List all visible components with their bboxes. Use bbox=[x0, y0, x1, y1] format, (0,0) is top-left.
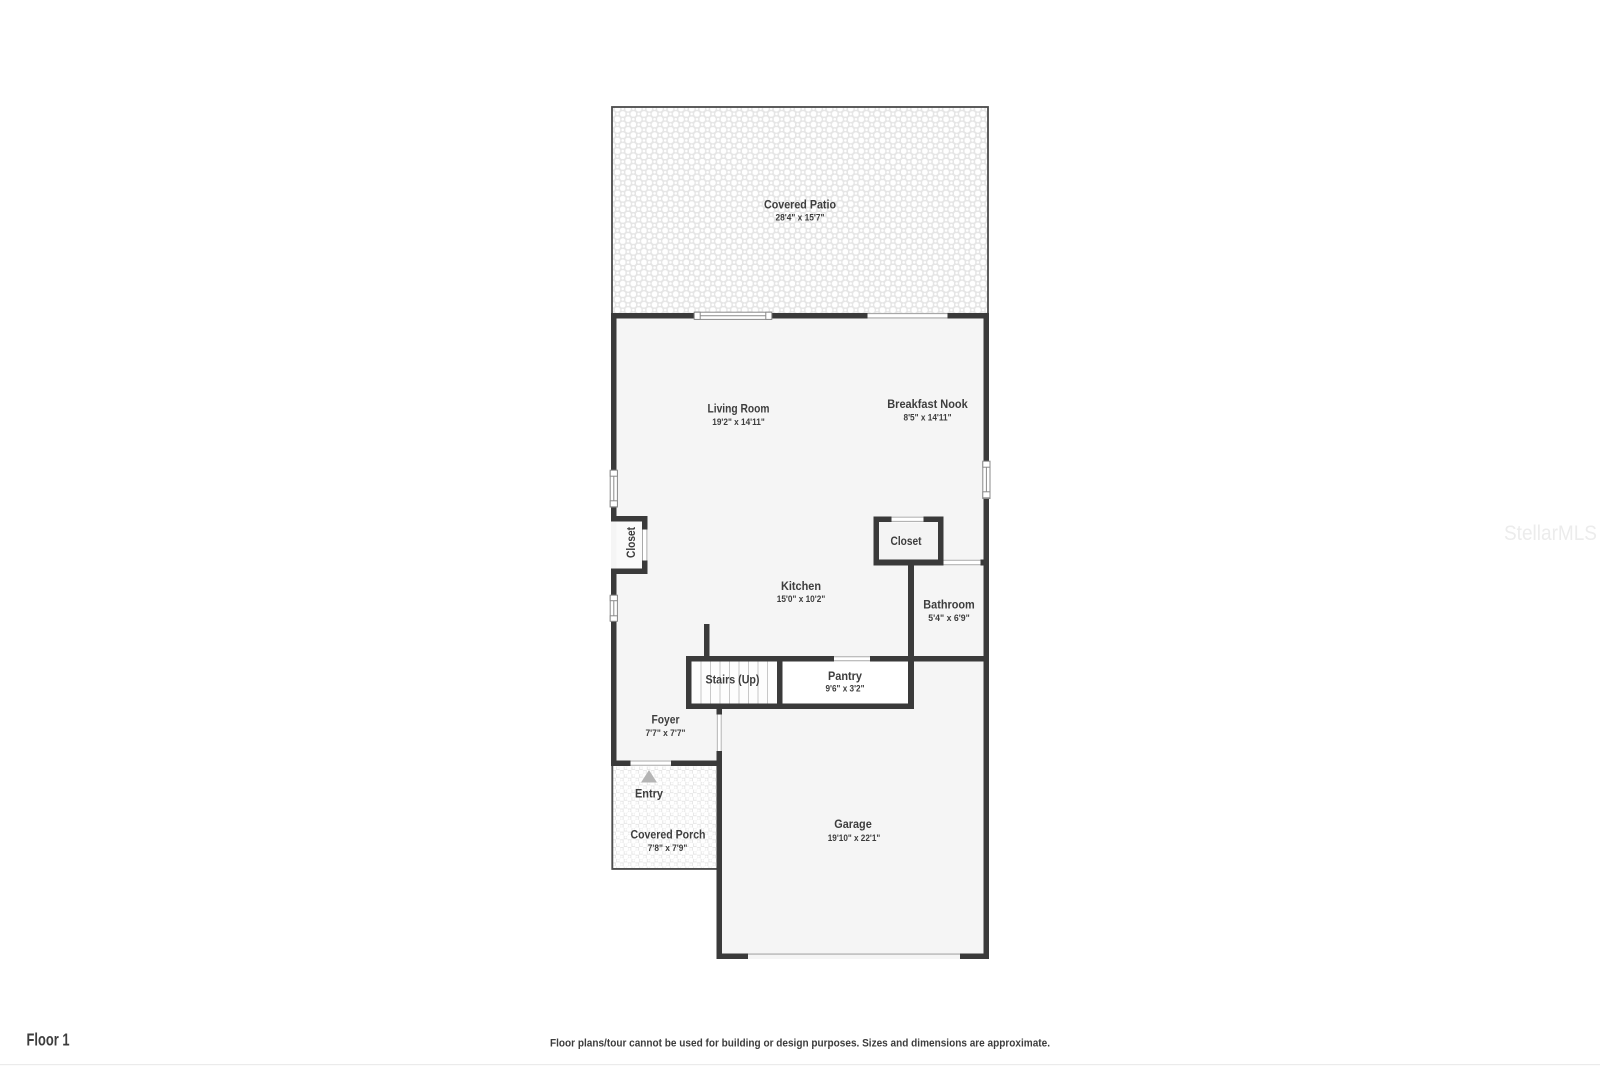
svg-text:Closet: Closet bbox=[891, 536, 922, 548]
svg-text:19'10" x 22'1": 19'10" x 22'1" bbox=[828, 833, 881, 843]
svg-text:8'5" x 14'11": 8'5" x 14'11" bbox=[904, 413, 952, 423]
svg-text:Floor 1: Floor 1 bbox=[27, 1030, 70, 1050]
svg-text:Pantry: Pantry bbox=[828, 671, 863, 683]
svg-text:Foyer: Foyer bbox=[652, 715, 680, 727]
svg-text:StellarMLS: StellarMLS bbox=[1504, 521, 1597, 545]
svg-text:Covered Patio: Covered Patio bbox=[764, 200, 836, 212]
svg-text:Bathroom: Bathroom bbox=[923, 600, 975, 612]
svg-text:Closet: Closet bbox=[626, 527, 638, 558]
svg-text:9'6" x 3'2": 9'6" x 3'2" bbox=[826, 684, 865, 694]
svg-text:19'2" x 14'11": 19'2" x 14'11" bbox=[712, 417, 765, 427]
svg-text:28'4" x 15'7": 28'4" x 15'7" bbox=[776, 213, 825, 223]
svg-text:Garage: Garage bbox=[834, 819, 872, 831]
svg-text:7'7" x 7'7": 7'7" x 7'7" bbox=[646, 728, 686, 738]
svg-text:15'0" x 10'2": 15'0" x 10'2" bbox=[777, 594, 826, 604]
svg-text:7'8" x 7'9": 7'8" x 7'9" bbox=[648, 843, 688, 853]
svg-text:5'4" x 6'9": 5'4" x 6'9" bbox=[928, 613, 970, 623]
svg-text:Breakfast Nook: Breakfast Nook bbox=[887, 399, 968, 411]
svg-text:Kitchen: Kitchen bbox=[781, 581, 821, 593]
svg-text:Stairs (Up): Stairs (Up) bbox=[706, 675, 760, 687]
svg-text:Covered Porch: Covered Porch bbox=[631, 830, 706, 842]
svg-text:Living Room: Living Room bbox=[708, 404, 770, 416]
svg-text:Floor plans/tour cannot be use: Floor plans/tour cannot be used for buil… bbox=[550, 1038, 1050, 1050]
svg-text:Entry: Entry bbox=[635, 789, 664, 801]
